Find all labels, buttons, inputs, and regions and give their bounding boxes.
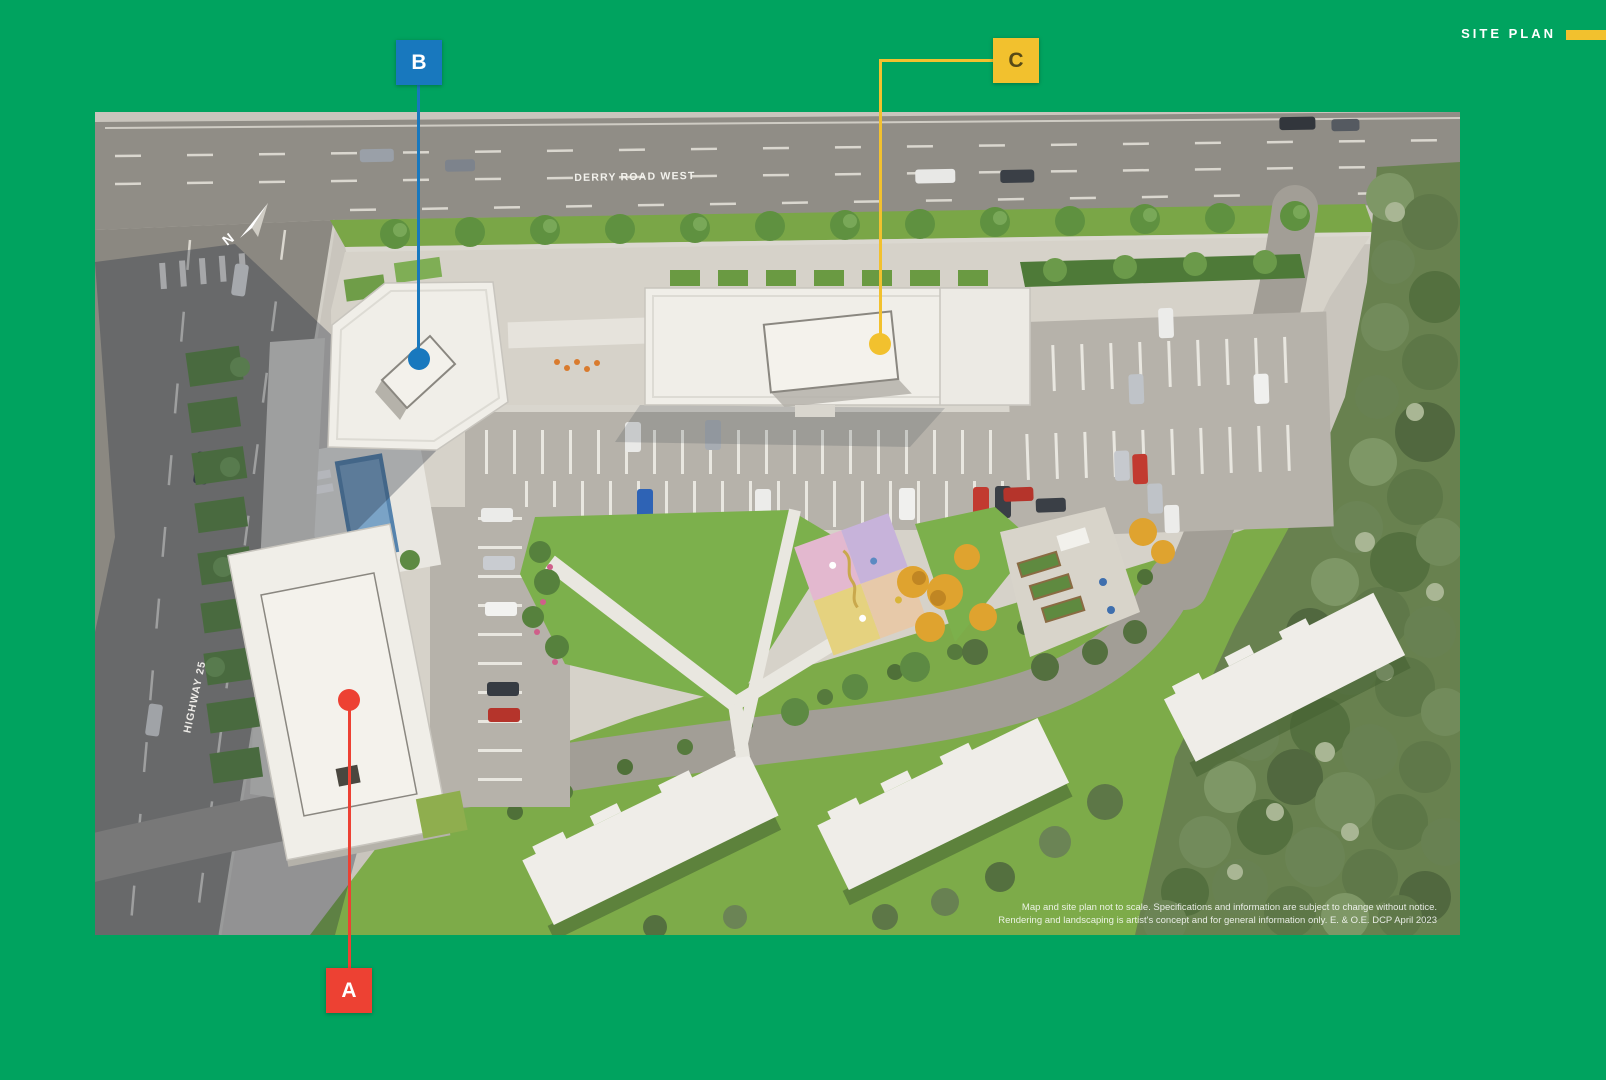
marker-c-line xyxy=(879,59,882,335)
page-title: SITE PLAN xyxy=(1461,26,1556,41)
marker-a-dot xyxy=(338,689,360,711)
marker-c-dot xyxy=(869,333,891,355)
accent-bar xyxy=(1566,30,1606,40)
site-plan-rendering: DERRY ROAD WEST HIGHWAY 25 N Map and sit… xyxy=(95,112,1460,935)
marker-a[interactable]: A xyxy=(326,968,372,1013)
disclaimer-line-2: Rendering and landscaping is artist's co… xyxy=(998,915,1437,926)
marker-b-dot xyxy=(408,348,430,370)
marker-c-hline xyxy=(879,59,993,62)
site-plan-image: DERRY ROAD WEST HIGHWAY 25 N Map and sit… xyxy=(95,112,1460,935)
marker-a-line xyxy=(348,709,351,969)
marker-c[interactable]: C xyxy=(993,38,1039,83)
derry-road-label: DERRY ROAD WEST xyxy=(574,170,695,184)
marker-a-label: A xyxy=(341,979,356,1003)
marker-b-line xyxy=(417,84,420,350)
disclaimer-line-1: Map and site plan not to scale. Specific… xyxy=(1022,902,1437,913)
marker-b-label: B xyxy=(411,51,426,75)
building-c xyxy=(645,270,1030,417)
marker-c-label: C xyxy=(1008,49,1023,73)
marker-b[interactable]: B xyxy=(396,40,442,85)
site-plan-page: SITE PLAN xyxy=(0,0,1606,1080)
east-parking xyxy=(997,302,1334,538)
